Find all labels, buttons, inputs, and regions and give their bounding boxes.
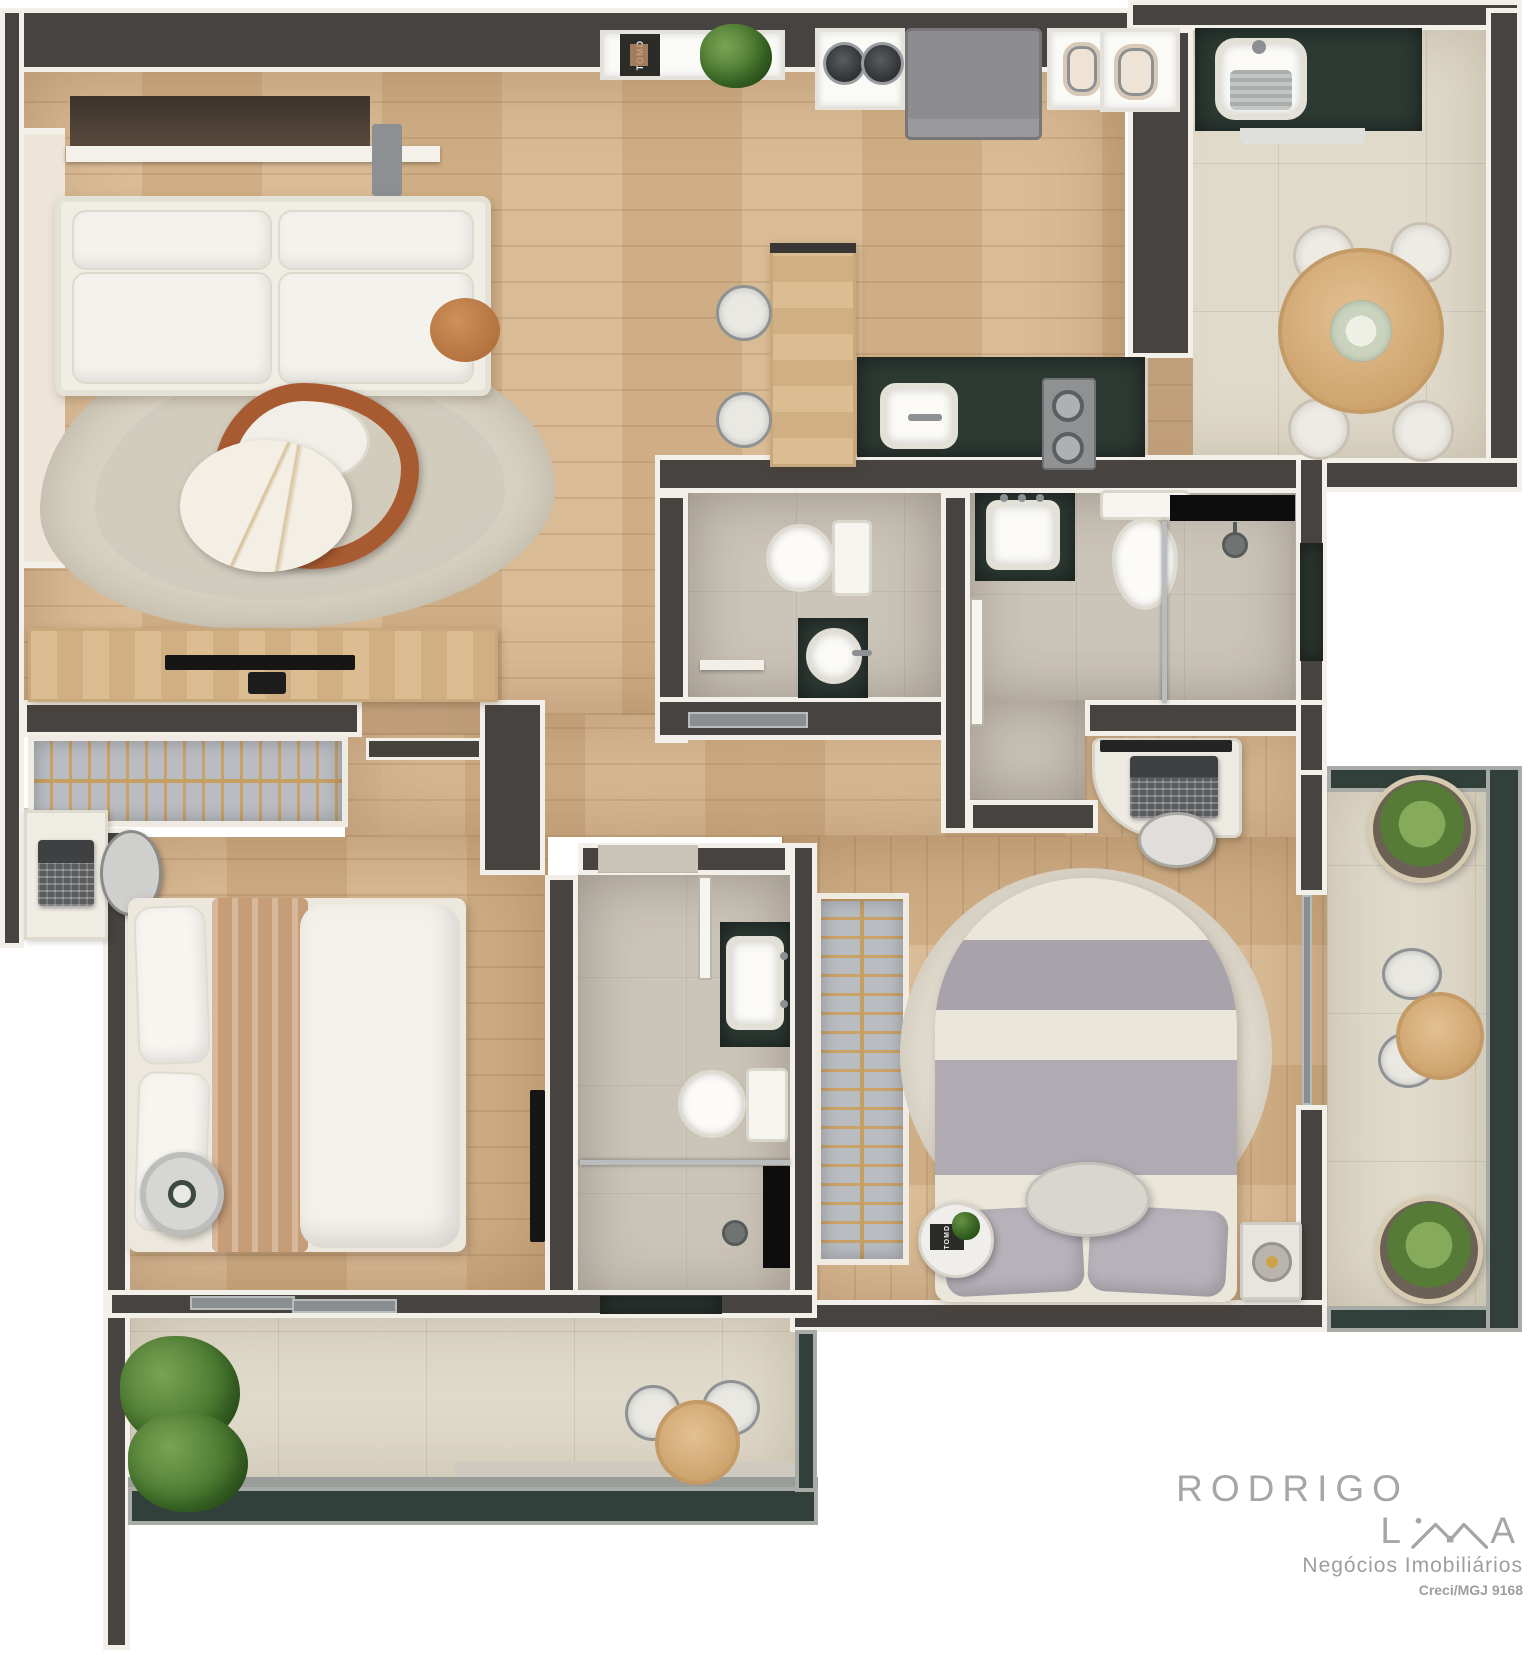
brand-license: Creci/MGJ 9168 bbox=[1145, 1582, 1523, 1598]
bedroom1-side-table-decor bbox=[168, 1180, 196, 1208]
wall-bathroom3-right bbox=[790, 843, 817, 1302]
kitchen-faucet bbox=[908, 414, 942, 421]
suite-balcony-sliding-door bbox=[1302, 895, 1312, 1105]
entry-door-handle bbox=[372, 124, 402, 196]
wall-bathroom2-bottom bbox=[968, 800, 1098, 833]
balcony-planter-1 bbox=[1368, 775, 1476, 883]
terrace-sliding-door-panel-1 bbox=[190, 1296, 295, 1310]
wall-hall-corner bbox=[480, 700, 545, 875]
brand-wordmark: RODRIGO L A bbox=[1145, 1468, 1523, 1552]
service-appliance bbox=[1114, 44, 1158, 100]
toaster bbox=[1063, 42, 1101, 96]
burner-2 bbox=[1052, 432, 1084, 464]
suite-desk-shelf bbox=[1100, 740, 1232, 752]
island-stool-1 bbox=[716, 285, 772, 341]
wall-bathrooms-top bbox=[655, 455, 1327, 493]
house-roof-icon bbox=[1411, 1514, 1488, 1552]
flower-centerpiece bbox=[1330, 300, 1392, 362]
sofa-seat-cushion-1 bbox=[72, 272, 272, 384]
bedroom1-door-opening bbox=[362, 702, 480, 735]
wall-suite-right-upper bbox=[1296, 700, 1327, 778]
bath3-faucet-2 bbox=[780, 1000, 788, 1008]
powder-room-sliding-door bbox=[688, 712, 808, 728]
suite-chair bbox=[1138, 812, 1216, 868]
floor-plan: TOMD bbox=[0, 0, 1529, 1655]
tv-base bbox=[248, 672, 286, 694]
brand-subtitle: Negócios Imobiliários bbox=[1145, 1554, 1523, 1578]
bath2-faucet-1 bbox=[1000, 494, 1008, 502]
bath3-toilet-tank bbox=[746, 1068, 788, 1142]
suite-table-plant bbox=[952, 1212, 980, 1240]
pot-appliance-2 bbox=[861, 42, 904, 85]
bedroom1-door-leaf bbox=[366, 738, 482, 760]
bath2-shower-niche bbox=[1170, 495, 1295, 521]
kitchen-island bbox=[770, 243, 856, 467]
laundry-washboard bbox=[1230, 70, 1292, 110]
brand-logo: RODRIGO L A Negócios Imobiliários Creci/… bbox=[1145, 1468, 1523, 1598]
suite-bed-runner-mid bbox=[935, 1060, 1237, 1175]
bathroom3-window-sill bbox=[600, 1296, 722, 1314]
burner-1 bbox=[1052, 390, 1084, 422]
bathroom3-door-leaf bbox=[698, 876, 712, 980]
terrace-rail-right bbox=[795, 1330, 817, 1492]
powder-faucet bbox=[852, 650, 872, 656]
bath2-shower-arm bbox=[1233, 522, 1237, 534]
bath2-faucet-2 bbox=[1018, 494, 1026, 502]
powder-toilet-tank bbox=[832, 520, 872, 596]
wall-bedroom1-top bbox=[22, 700, 362, 737]
bath3-faucet-1 bbox=[780, 952, 788, 960]
washer-front bbox=[1240, 128, 1365, 144]
wall-bedroom1-bath3-divider bbox=[545, 875, 578, 1302]
coffee-table-marble-top bbox=[180, 440, 352, 572]
bath3-shower-niche bbox=[763, 1166, 790, 1268]
bedroom1-wall-tv bbox=[530, 1090, 545, 1242]
suite-bed-runner-top bbox=[935, 940, 1237, 1010]
entry-console bbox=[70, 96, 370, 150]
bathroom2-door-leaf bbox=[970, 598, 984, 726]
balcony-planter-2 bbox=[1375, 1196, 1483, 1304]
suite-lamp-bulb bbox=[1266, 1256, 1278, 1268]
bath2-shower-glass bbox=[1162, 521, 1167, 703]
wall-shower-bottom bbox=[1085, 700, 1327, 736]
bathroom3-door-opening bbox=[598, 845, 698, 873]
balcony-rail-right bbox=[1486, 766, 1522, 1332]
bath2-basin bbox=[986, 500, 1060, 570]
sofa-back-cushion-2 bbox=[278, 210, 474, 270]
bath3-shower-head bbox=[722, 1220, 748, 1246]
bathroom2-window bbox=[1300, 543, 1323, 661]
suite-laptop bbox=[1130, 756, 1218, 818]
bedroom1-blanket bbox=[212, 898, 308, 1252]
brand-wordmark-prefix: RODRIGO L bbox=[1145, 1468, 1409, 1552]
fridge bbox=[905, 28, 1042, 140]
powder-vessel-basin bbox=[806, 628, 862, 684]
pot-appliance-1 bbox=[823, 42, 866, 85]
bedroom1-pillow-1 bbox=[133, 905, 210, 1065]
island-stool-2 bbox=[716, 392, 772, 448]
powder-toilet-bowl bbox=[766, 524, 834, 592]
brand-wordmark-suffix: A bbox=[1490, 1510, 1523, 1552]
dining-passage-floor bbox=[1148, 355, 1193, 458]
wall-suite-bottom bbox=[790, 1300, 1327, 1332]
terrace-sliding-door-panel-2 bbox=[292, 1299, 397, 1313]
kitchen-plant bbox=[700, 24, 772, 88]
bedroom1-duvet bbox=[300, 904, 460, 1248]
wall-left-lower bbox=[103, 828, 130, 1650]
sofa-side-table bbox=[430, 298, 500, 362]
powder-shelf bbox=[700, 660, 764, 670]
wall-bathrooms-divider bbox=[941, 493, 970, 833]
bath2-faucet-3 bbox=[1036, 494, 1044, 502]
suite-closet bbox=[815, 893, 909, 1265]
terrace-plant-lower bbox=[128, 1412, 248, 1512]
balcony-rail-bottom bbox=[1327, 1306, 1490, 1332]
bath3-shower-glass bbox=[580, 1160, 790, 1165]
suite-pouf bbox=[1025, 1162, 1150, 1237]
kitchen-island-edge bbox=[770, 243, 856, 253]
bath3-basin bbox=[726, 936, 784, 1030]
terrace-table bbox=[655, 1400, 740, 1485]
dining-chair-4 bbox=[1392, 400, 1454, 462]
laundry-faucet bbox=[1252, 40, 1266, 54]
balcony-table bbox=[1396, 992, 1484, 1080]
wall-right-dining bbox=[1486, 8, 1522, 492]
wall-top-right bbox=[1128, 0, 1522, 30]
kitchen-magazine-photo bbox=[630, 44, 648, 66]
wall-suite-balcony-upper bbox=[1296, 770, 1327, 895]
wall-left bbox=[0, 8, 24, 948]
bedroom1-laptop bbox=[38, 840, 94, 906]
suite-magazine-title: TOMD bbox=[944, 1225, 951, 1249]
bath3-toilet-bowl bbox=[678, 1070, 746, 1138]
tv bbox=[165, 655, 355, 670]
sofa-back-cushion-1 bbox=[72, 210, 272, 270]
bathroom2-floor-lower bbox=[968, 700, 1088, 800]
bath2-shower-head bbox=[1222, 532, 1248, 558]
